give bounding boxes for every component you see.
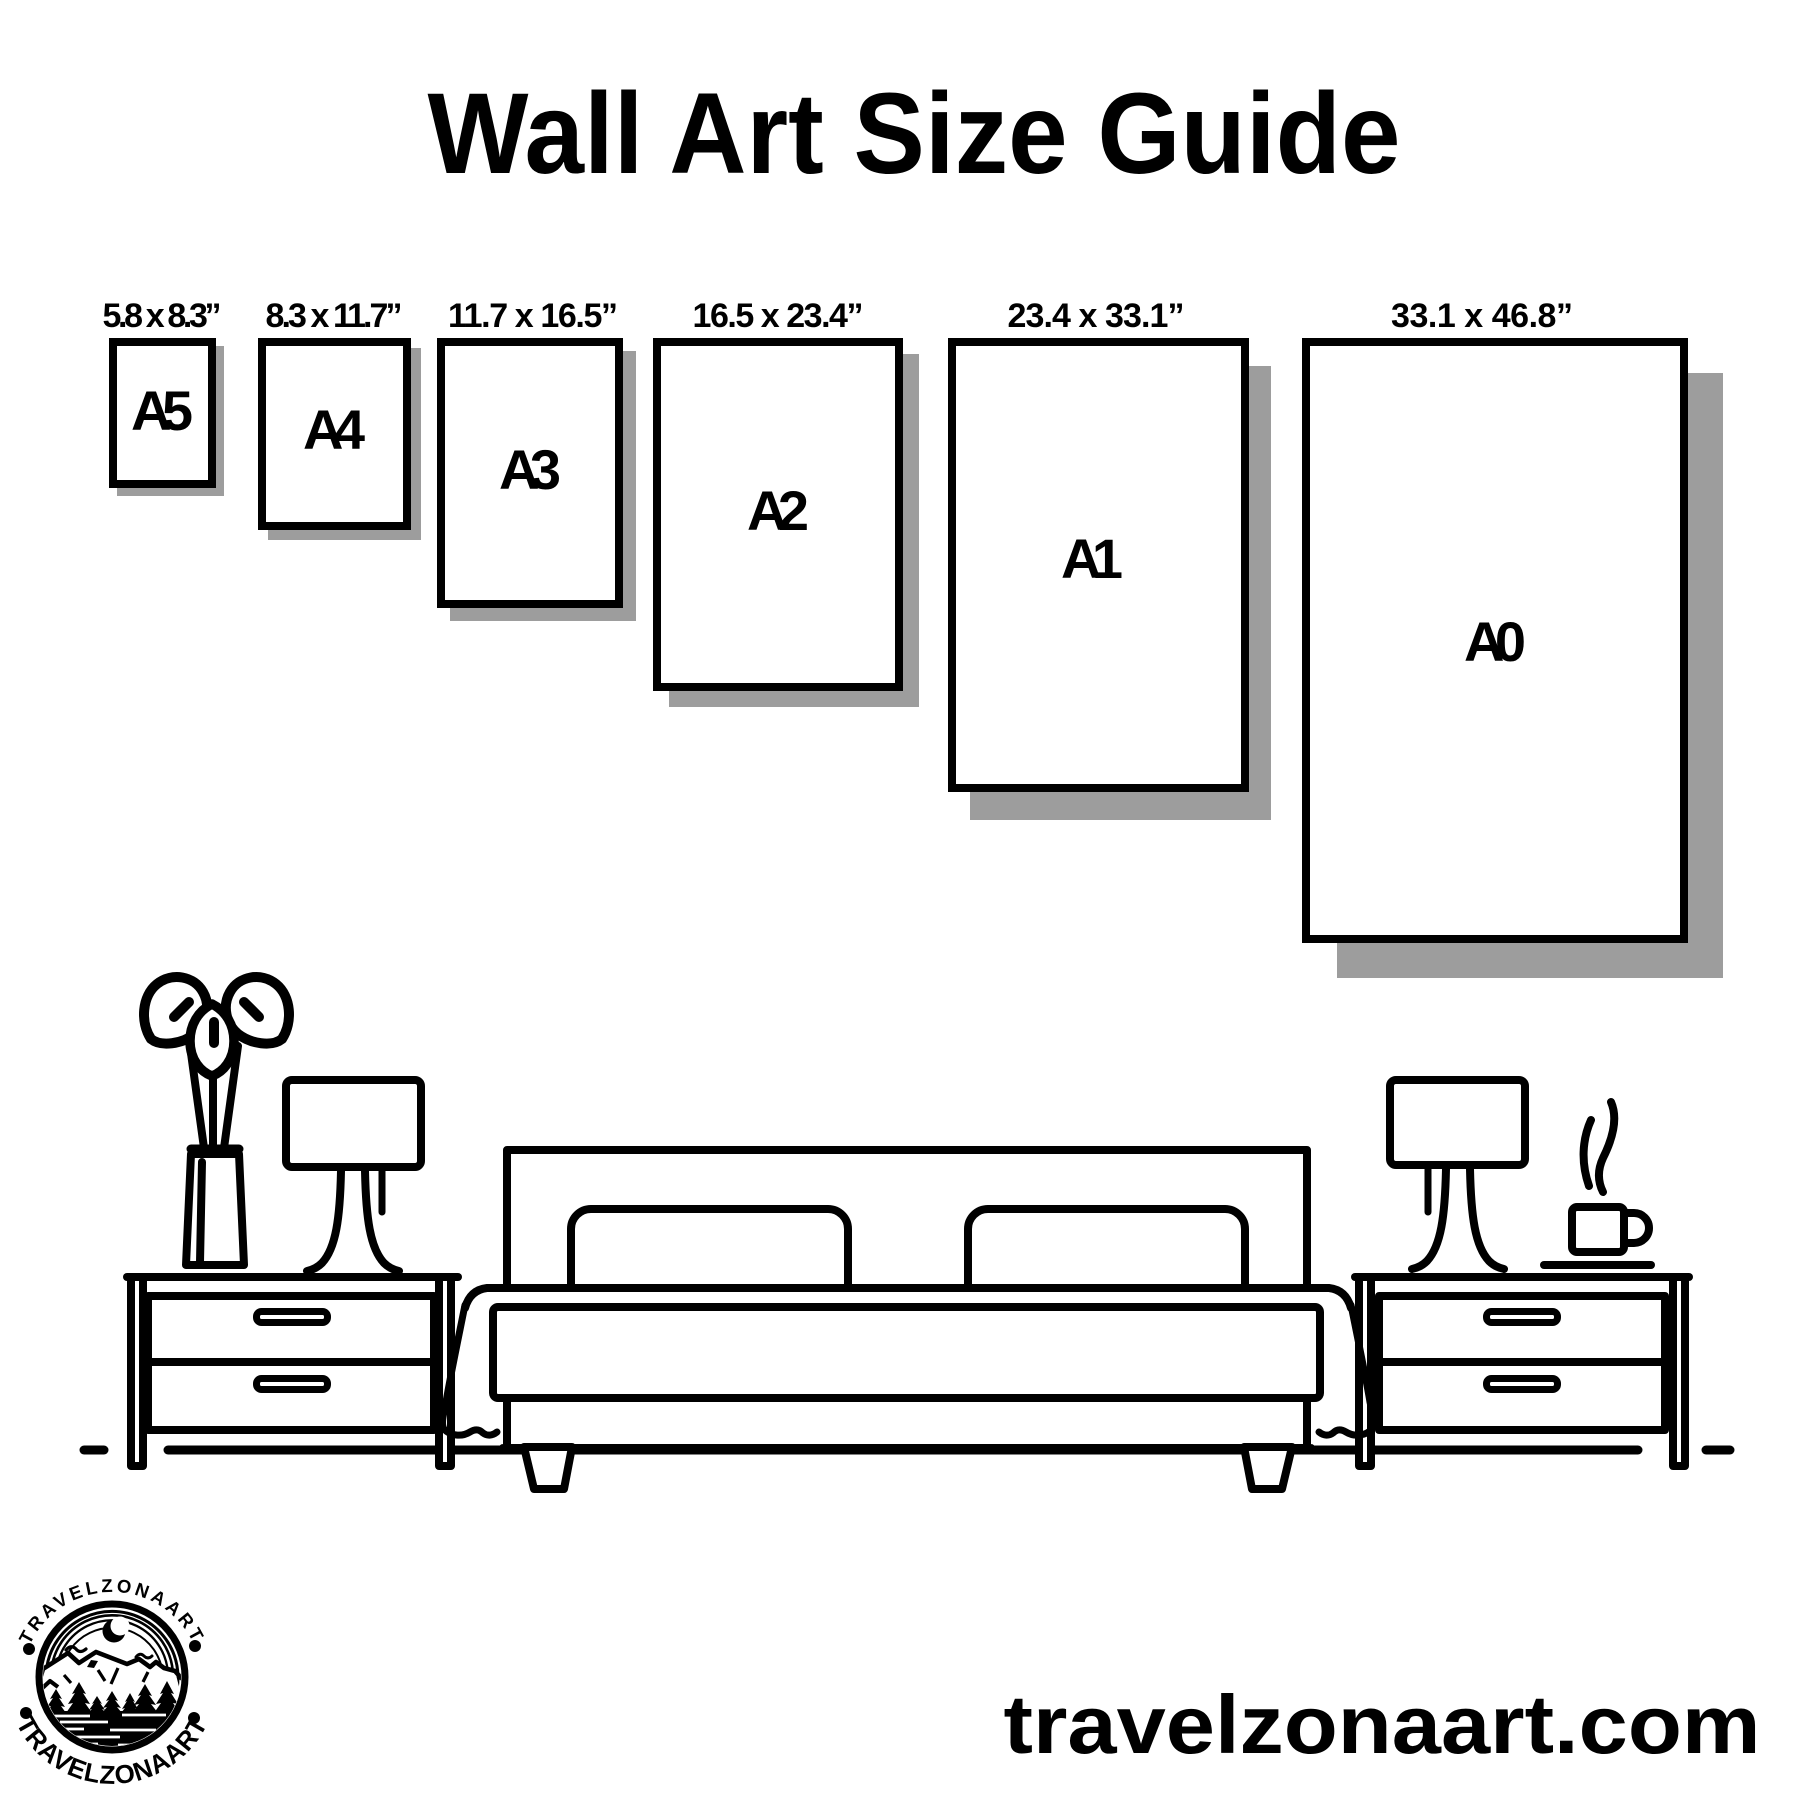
svg-text:5.8 x 8.3”: 5.8 x 8.3” [103,297,222,335]
svg-text:8.3 x 11.7”: 8.3 x 11.7” [266,297,403,335]
svg-text:33.1 x 46.8”: 33.1 x 46.8” [1391,297,1573,335]
svg-text:A5: A5 [131,379,193,442]
svg-text:A3: A3 [499,438,561,501]
svg-text:A4: A4 [303,398,365,461]
svg-text:A2: A2 [747,479,809,542]
svg-text:A0: A0 [1464,610,1526,673]
svg-text:23.4 x 33.1”: 23.4 x 33.1” [1008,297,1185,335]
svg-text:Wall Art Size Guide: Wall Art Size Guide [428,70,1401,198]
svg-text:11.7 x 16.5”: 11.7 x 16.5” [448,297,618,335]
svg-text:travelzonaart.com: travelzonaart.com [1004,1678,1761,1771]
svg-text:A1: A1 [1061,527,1123,590]
svg-text:16.5 x 23.4”: 16.5 x 23.4” [693,297,864,335]
